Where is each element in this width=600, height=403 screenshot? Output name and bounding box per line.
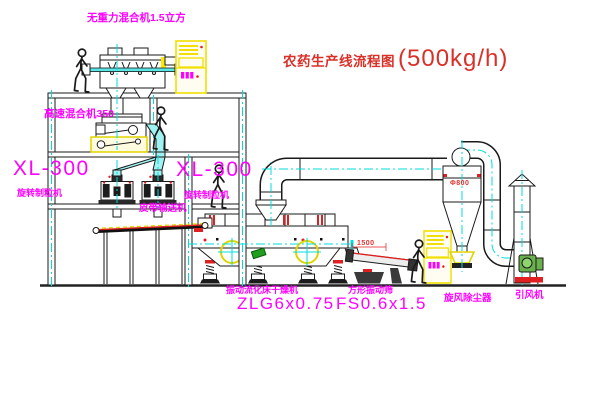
control-cabinet-top	[176, 41, 206, 93]
fluid-bed-dryer	[190, 214, 361, 284]
label-cyclone: 旋风除尘器	[444, 294, 492, 304]
diagram-title: 农药生产线流程图 (500kg/h)	[283, 45, 508, 73]
label-high-speed-mixer: 高速混合机350	[44, 109, 114, 120]
gravity-free-mixer-machine	[82, 48, 183, 98]
label-granulator-left-name: 旋转制粒机	[17, 189, 62, 198]
dimension-sieve-1500: 1500	[357, 240, 375, 247]
control-cabinet-right	[424, 231, 451, 283]
label-granulator-right-model: XL-300	[176, 159, 253, 180]
label-gravity-mixer: 无重力混合机1.5立方	[87, 13, 186, 24]
title-text: 农药生产线流程图	[283, 50, 395, 70]
title-capacity: (500kg/h)	[398, 45, 508, 73]
induced-draft-fan-machine	[515, 255, 543, 283]
label-fan: 引风机	[515, 291, 544, 301]
high-speed-mixer-machine	[91, 98, 147, 152]
label-granulator-right-name: 旋转制粒机	[184, 191, 229, 200]
label-dryer-model: ZLG6x0.75	[237, 295, 335, 312]
label-granulator-left-model: XL-300	[13, 158, 90, 179]
label-sieve-model: FS0.6x1.5	[336, 295, 427, 312]
label-belt-conveyor: 皮带输送机	[139, 204, 187, 214]
dimension-cyclone-800: Φ800	[450, 180, 469, 187]
pesticide-line-flow-diagram: 农药生产线流程图 (500kg/h) 无重力混合机1.5立方 高速混合机350 …	[0, 0, 600, 403]
